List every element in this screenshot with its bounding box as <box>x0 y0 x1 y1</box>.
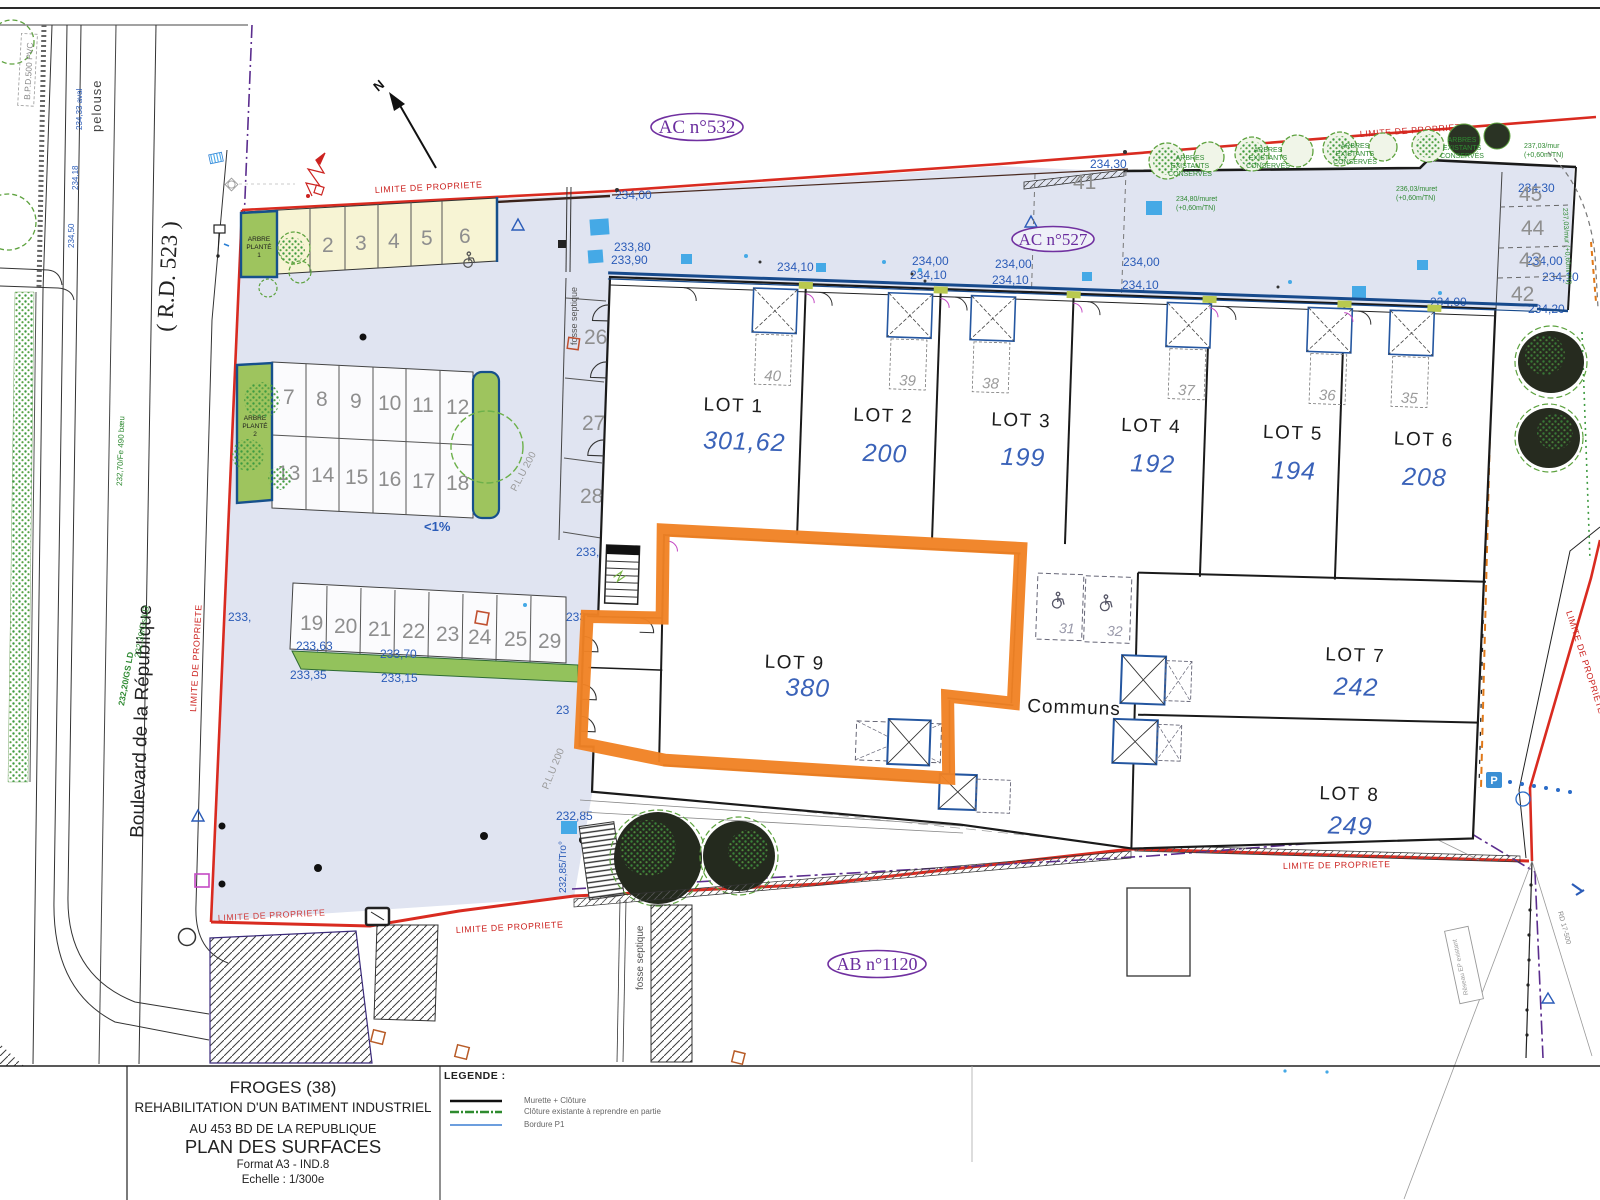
svg-text:AC n°532: AC n°532 <box>659 117 736 138</box>
svg-text:(+0,60m/TN): (+0,60m/TN) <box>1396 195 1435 202</box>
svg-text:ARBRE: ARBRE <box>248 236 271 243</box>
svg-text:2: 2 <box>322 234 334 257</box>
svg-text:Format A3 - IND.8: Format A3 - IND.8 <box>237 1159 330 1171</box>
svg-text:233,70: 233,70 <box>380 647 417 661</box>
svg-text:LOT 2: LOT 2 <box>853 405 914 428</box>
svg-text:PLAN DES SURFACES: PLAN DES SURFACES <box>185 1136 381 1157</box>
svg-text:15: 15 <box>345 466 368 489</box>
svg-text:22: 22 <box>402 620 425 643</box>
svg-text:32: 32 <box>1107 623 1123 640</box>
svg-text:LEGENDE :: LEGENDE : <box>444 1070 506 1082</box>
svg-text:233,90: 233,90 <box>611 253 648 267</box>
svg-text:38: 38 <box>982 375 1000 393</box>
svg-text:Communs: Communs <box>1027 696 1121 720</box>
svg-text:ARBRES: ARBRES <box>1448 137 1477 144</box>
svg-text:234,00: 234,00 <box>912 254 949 268</box>
svg-text:1: 1 <box>257 252 261 259</box>
svg-text:REHABILITATION D'UN BATIMENT I: REHABILITATION D'UN BATIMENT INDUSTRIEL <box>135 1100 432 1115</box>
svg-text:24: 24 <box>468 626 492 649</box>
svg-text:(+0,60m/TN): (+0,60m/TN) <box>1524 152 1563 159</box>
svg-text:8: 8 <box>316 388 328 411</box>
svg-text:44: 44 <box>1521 217 1545 240</box>
svg-text:4: 4 <box>388 230 400 253</box>
svg-text:28: 28 <box>580 485 603 508</box>
svg-text:3: 3 <box>355 232 367 255</box>
svg-text:199: 199 <box>1000 443 1046 473</box>
svg-text:FROGES (38): FROGES (38) <box>230 1078 337 1097</box>
svg-text:(+0,60m/TN): (+0,60m/TN) <box>1176 205 1215 212</box>
svg-text:232,85/Tro°: 232,85/Tro° <box>558 841 569 893</box>
svg-text:234,10: 234,10 <box>777 260 814 274</box>
svg-text:16: 16 <box>378 468 401 491</box>
svg-text:208: 208 <box>1401 463 1448 493</box>
svg-text:23: 23 <box>436 623 459 646</box>
svg-text:fosse septique: fosse septique <box>635 925 646 990</box>
svg-text:200: 200 <box>861 439 908 469</box>
svg-text:233,80: 233,80 <box>614 240 651 254</box>
svg-text:242: 242 <box>1332 672 1379 702</box>
svg-text:<1%: <1% <box>424 519 451 534</box>
svg-text:234,00: 234,00 <box>995 257 1032 271</box>
svg-text:26: 26 <box>584 326 607 349</box>
svg-text:LIMITE DE PROPRIETE: LIMITE DE PROPRIETE <box>1283 859 1391 871</box>
svg-text:AU 453 BD DE LA REPUBLIQUE: AU 453 BD DE LA REPUBLIQUE <box>190 1122 377 1136</box>
svg-text:CONSERVÉS: CONSERVÉS <box>1246 161 1290 170</box>
svg-text:LOT 6: LOT 6 <box>1393 428 1454 451</box>
svg-text:EXISTANTS: EXISTANTS <box>1249 155 1288 162</box>
svg-text:AB n°1120: AB n°1120 <box>836 954 917 974</box>
svg-text:LOT 7: LOT 7 <box>1325 644 1386 667</box>
svg-text:43: 43 <box>1519 249 1542 272</box>
svg-text:LOT 5: LOT 5 <box>1263 422 1324 445</box>
svg-text:Clôture existante à reprendre: Clôture existante à reprendre en partie <box>524 1107 662 1116</box>
svg-text:LOT 9: LOT 9 <box>764 652 825 675</box>
svg-text:35: 35 <box>1401 390 1419 408</box>
svg-text:14: 14 <box>311 464 335 487</box>
svg-text:AC n°527: AC n°527 <box>1019 230 1088 249</box>
svg-text:232,85: 232,85 <box>556 809 593 823</box>
svg-text:ARBRES: ARBRES <box>1341 143 1370 150</box>
svg-text:194: 194 <box>1271 456 1317 486</box>
svg-text:233,: 233, <box>228 610 251 624</box>
svg-text:LOT 1: LOT 1 <box>703 394 764 417</box>
svg-text:pelouse: pelouse <box>89 79 104 132</box>
svg-text:LOT 4: LOT 4 <box>1121 415 1182 438</box>
svg-text:236,03/muret: 236,03/muret <box>1396 186 1437 193</box>
svg-text:CONSERVÉS: CONSERVÉS <box>1333 157 1377 166</box>
svg-text:Echelle : 1/300e: Echelle : 1/300e <box>242 1174 324 1186</box>
svg-text:5: 5 <box>421 227 433 250</box>
svg-text:234,18: 234,18 <box>71 165 80 190</box>
svg-text:EXISTANTS: EXISTANTS <box>1443 145 1482 152</box>
svg-text:Bordure P1: Bordure P1 <box>524 1120 565 1129</box>
svg-text:ARBRES: ARBRES <box>1176 155 1205 162</box>
svg-text:2: 2 <box>253 431 257 438</box>
svg-text:249: 249 <box>1326 811 1373 841</box>
svg-text:380: 380 <box>785 673 831 703</box>
svg-text:234,80/muret: 234,80/muret <box>1176 196 1217 203</box>
svg-text:LOT 8: LOT 8 <box>1319 783 1380 806</box>
svg-text:234,10: 234,10 <box>910 268 947 282</box>
svg-text:20: 20 <box>334 615 357 638</box>
svg-text:10: 10 <box>378 392 401 415</box>
svg-text:234,30: 234,30 <box>1090 157 1127 171</box>
svg-text:18: 18 <box>446 472 469 495</box>
svg-text:25: 25 <box>504 628 527 651</box>
svg-text:EXISTANTS: EXISTANTS <box>1171 163 1210 170</box>
svg-text:CONSERVÉS: CONSERVÉS <box>1440 151 1484 160</box>
svg-text:233,35: 233,35 <box>290 668 327 682</box>
svg-text:237,03/mur: 237,03/mur <box>1524 143 1560 150</box>
svg-text:LOT 3: LOT 3 <box>991 409 1052 432</box>
svg-text:234,10: 234,10 <box>992 273 1029 287</box>
svg-text:Murette + Clôture: Murette + Clôture <box>524 1096 587 1105</box>
svg-text:42: 42 <box>1511 283 1534 306</box>
svg-text:PLANTÉ: PLANTÉ <box>246 242 272 251</box>
svg-text:11: 11 <box>412 394 434 417</box>
svg-text:192: 192 <box>1130 449 1176 479</box>
svg-text:29: 29 <box>538 630 561 653</box>
svg-text:P: P <box>1490 775 1497 787</box>
svg-text:9: 9 <box>350 390 362 413</box>
svg-text:19: 19 <box>300 612 323 635</box>
svg-text:40: 40 <box>764 367 782 385</box>
svg-text:12: 12 <box>446 396 469 419</box>
svg-text:45: 45 <box>1519 183 1542 206</box>
svg-text:7: 7 <box>283 386 295 409</box>
svg-text:37: 37 <box>1178 382 1196 400</box>
svg-text:PLANTÉ: PLANTÉ <box>242 421 268 430</box>
svg-text:233,15: 233,15 <box>381 671 418 685</box>
svg-text:31: 31 <box>1059 620 1075 637</box>
svg-text:17: 17 <box>412 470 435 493</box>
svg-text:6: 6 <box>459 225 471 248</box>
svg-text:39: 39 <box>899 372 917 390</box>
svg-text:36: 36 <box>1319 387 1337 405</box>
svg-text:233,63: 233,63 <box>296 639 333 653</box>
svg-text:EXISTANTS: EXISTANTS <box>1336 151 1375 158</box>
svg-text:ARBRES: ARBRES <box>1254 147 1283 154</box>
svg-text:234,50: 234,50 <box>67 223 76 248</box>
svg-text:301,62: 301,62 <box>703 426 786 457</box>
svg-text:23: 23 <box>556 703 570 717</box>
svg-text:234,33 aval: 234,33 aval <box>75 88 84 130</box>
svg-text:CONSERVÉS: CONSERVÉS <box>1168 169 1212 178</box>
svg-text:234,00: 234,00 <box>1123 255 1160 269</box>
svg-text:41: 41 <box>1073 171 1096 194</box>
svg-text:21: 21 <box>368 618 391 641</box>
svg-text:234,00: 234,00 <box>615 188 652 202</box>
svg-text:27: 27 <box>582 412 605 435</box>
svg-text:fosse septique: fosse septique <box>569 287 579 345</box>
